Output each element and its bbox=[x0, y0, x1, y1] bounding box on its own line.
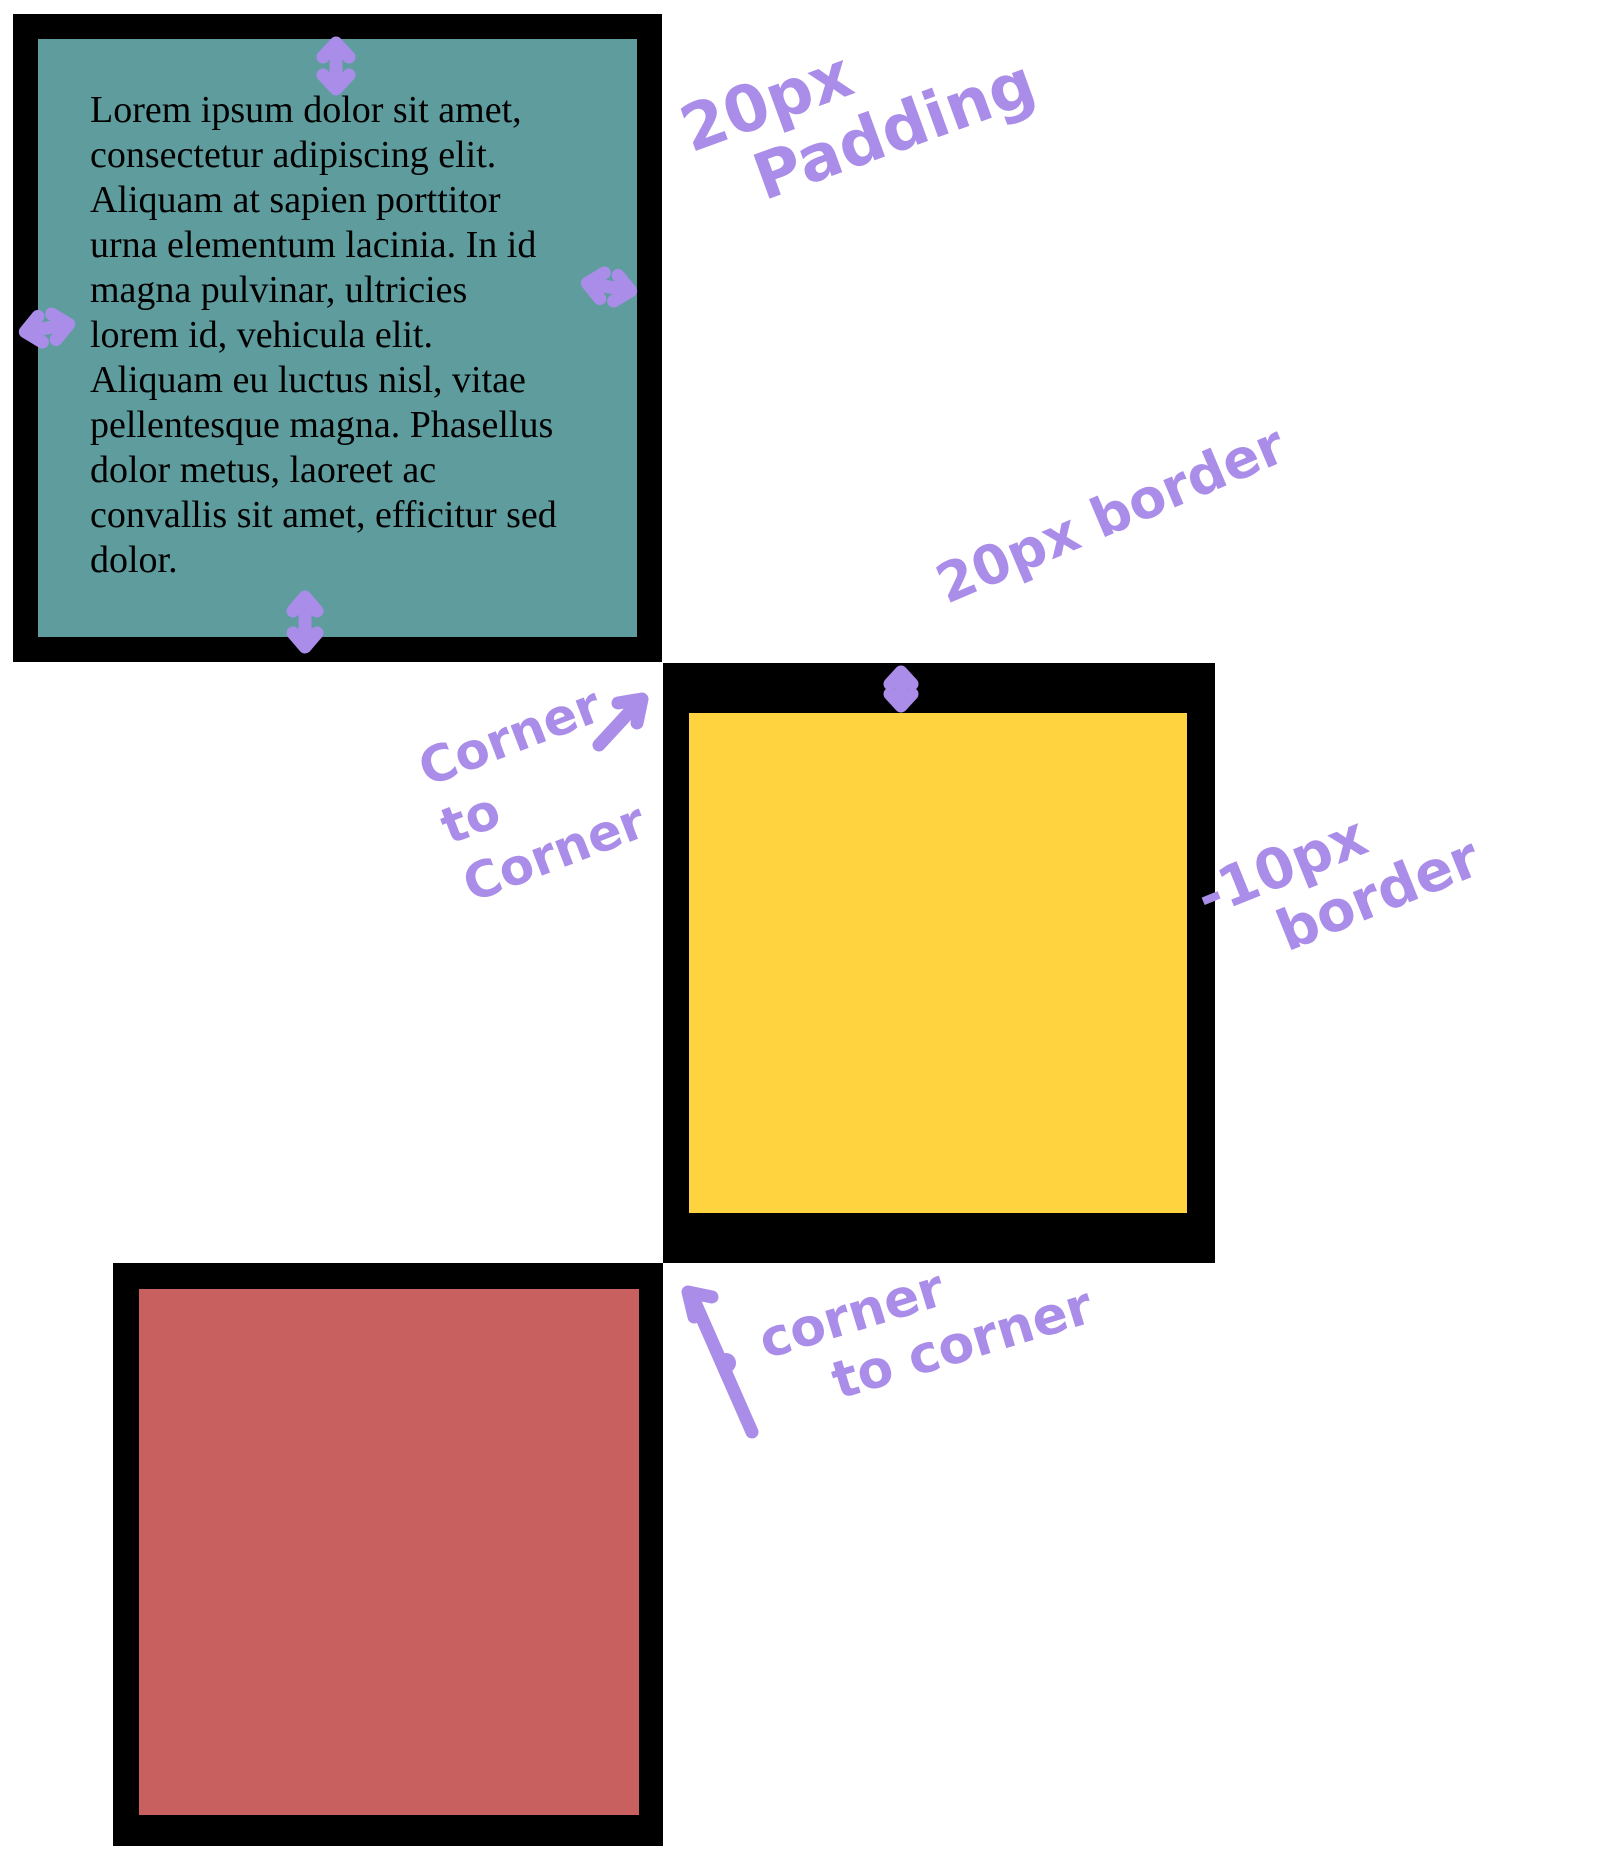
border-10px-annotation-label: -10px border bbox=[1188, 769, 1488, 986]
red-box bbox=[113, 1263, 663, 1846]
border-20px-label-text: 20px border bbox=[928, 415, 1293, 615]
teal-text-box: Lorem ipsum dolor sit amet, consectetur … bbox=[13, 14, 662, 662]
border-20px-annotation-label: 20px border bbox=[928, 415, 1293, 615]
corner-to-corner-arrow-bottom-icon bbox=[688, 1292, 752, 1432]
lorem-ipsum-text: Lorem ipsum dolor sit amet, consectetur … bbox=[90, 88, 593, 583]
corner-to-corner-annotation-top: Corner to Corner bbox=[410, 674, 654, 916]
yellow-box bbox=[663, 663, 1215, 1263]
ink-dot bbox=[716, 1353, 736, 1373]
padding-annotation-label: 20px Padding bbox=[672, 0, 1045, 232]
sketch-canvas: { "canvas": { "width": 1622, "height": 1… bbox=[0, 0, 1622, 1866]
